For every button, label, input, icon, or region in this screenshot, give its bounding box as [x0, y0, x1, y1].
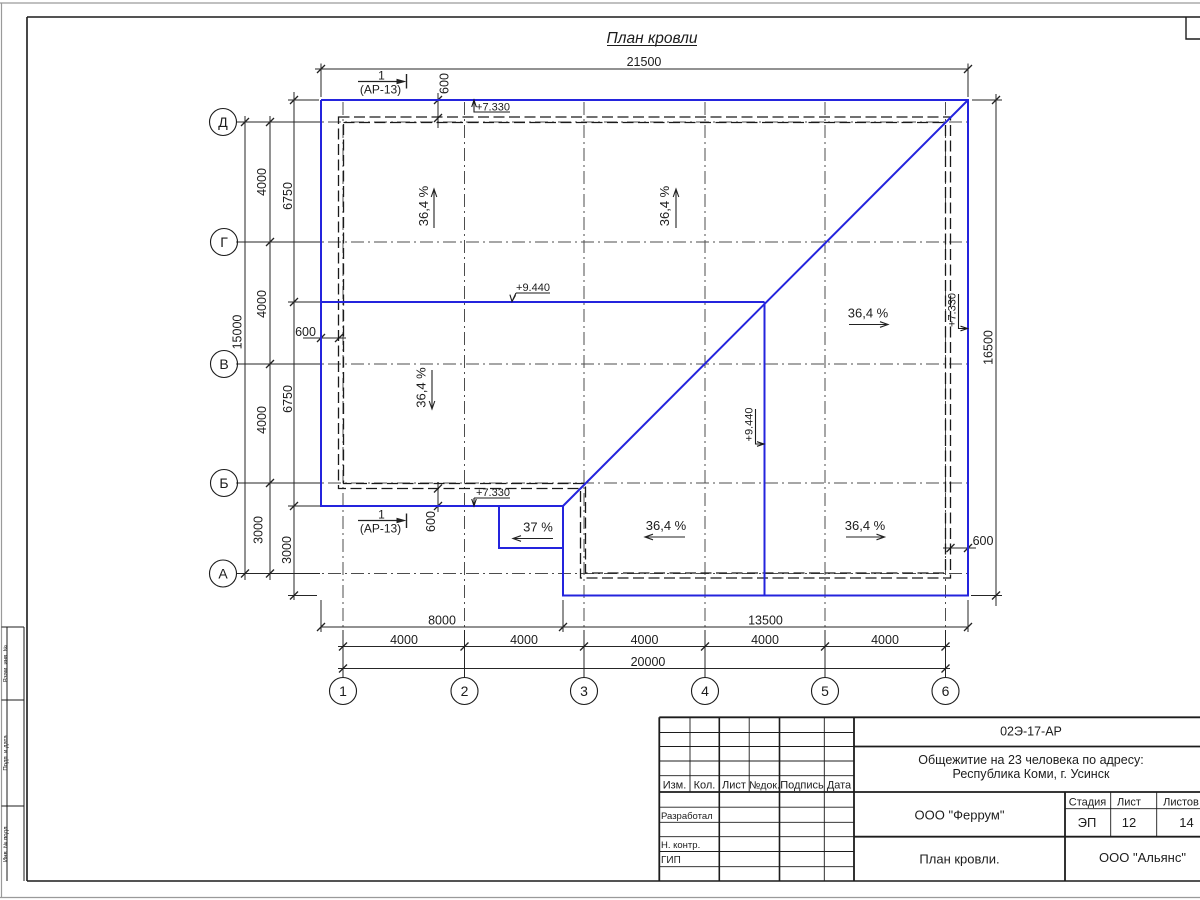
svg-text:37 %: 37 %: [523, 520, 553, 535]
svg-text:36,4 %: 36,4 %: [416, 185, 431, 226]
svg-text:Взам. инв. №: Взам. инв. №: [3, 645, 10, 682]
svg-text:4: 4: [701, 683, 709, 699]
svg-text:4000: 4000: [631, 633, 659, 647]
svg-text:В: В: [219, 356, 228, 372]
svg-text:6750: 6750: [281, 182, 295, 210]
svg-text:36,4 %: 36,4 %: [414, 367, 429, 408]
svg-text:2: 2: [461, 683, 469, 699]
svg-text:600: 600: [295, 325, 316, 339]
svg-text:4000: 4000: [510, 633, 538, 647]
svg-text:4000: 4000: [255, 406, 269, 434]
svg-text:Общежитие на 23 человека по ад: Общежитие на 23 человека по адресу:: [918, 753, 1143, 767]
svg-text:21500: 21500: [627, 55, 662, 69]
svg-text:(АР-13): (АР-13): [360, 522, 401, 536]
svg-text:4000: 4000: [871, 633, 899, 647]
svg-text:ООО "Феррум": ООО "Феррум": [915, 808, 1005, 823]
svg-text:36,4 %: 36,4 %: [845, 518, 886, 533]
svg-text:А: А: [218, 566, 228, 582]
svg-text:4000: 4000: [255, 168, 269, 196]
svg-text:Г: Г: [220, 234, 228, 250]
svg-text:4000: 4000: [255, 290, 269, 318]
svg-text:6: 6: [942, 683, 950, 699]
svg-text:+7.330: +7.330: [947, 293, 959, 327]
svg-text:3: 3: [580, 683, 588, 699]
svg-text:600: 600: [424, 511, 438, 532]
svg-text:600: 600: [973, 534, 994, 548]
svg-text:12: 12: [1122, 815, 1136, 830]
svg-text:Б: Б: [219, 475, 228, 491]
svg-text:15000: 15000: [231, 315, 245, 350]
svg-text:Дата: Дата: [827, 780, 852, 792]
svg-text:6750: 6750: [281, 385, 295, 413]
svg-text:14: 14: [1179, 815, 1193, 830]
svg-text:3000: 3000: [280, 536, 294, 564]
svg-text:+9.440: +9.440: [744, 408, 756, 442]
svg-text:ЭП: ЭП: [1078, 815, 1097, 830]
svg-text:Республика Коми, г. Усинск: Республика Коми, г. Усинск: [953, 767, 1110, 781]
svg-text:1: 1: [378, 69, 385, 83]
svg-text:(АР-13): (АР-13): [360, 83, 401, 97]
svg-text:Н. контр.: Н. контр.: [661, 840, 700, 851]
svg-text:20000: 20000: [631, 655, 666, 669]
svg-text:План кровли.: План кровли.: [919, 852, 999, 867]
svg-text:ООО "Альянс": ООО "Альянс": [1099, 850, 1186, 865]
svg-text:Стадия: Стадия: [1069, 797, 1107, 809]
svg-text:Лист: Лист: [722, 780, 746, 792]
svg-text:Листов: Листов: [1163, 797, 1199, 809]
svg-text:Лист: Лист: [1117, 797, 1141, 809]
svg-text:Изм.: Изм.: [663, 780, 687, 792]
svg-text:Подп. и дата: Подп. и дата: [4, 735, 10, 771]
svg-text:+7.330: +7.330: [476, 487, 510, 499]
svg-text:3000: 3000: [252, 516, 266, 544]
svg-text:Разработал: Разработал: [661, 811, 713, 822]
svg-text:1: 1: [378, 508, 385, 522]
svg-text:13500: 13500: [748, 614, 783, 628]
svg-text:План кровли: План кровли: [607, 30, 698, 47]
svg-text:+7.330: +7.330: [476, 102, 510, 114]
svg-text:16500: 16500: [982, 330, 996, 365]
svg-text:№док.: №док.: [749, 780, 780, 792]
svg-text:4000: 4000: [751, 633, 779, 647]
svg-text:+9.440: +9.440: [516, 282, 550, 294]
svg-text:36,4 %: 36,4 %: [848, 306, 889, 321]
svg-text:36,4 %: 36,4 %: [657, 185, 672, 226]
svg-text:02Э-17-АР: 02Э-17-АР: [1000, 725, 1062, 739]
svg-text:1: 1: [339, 683, 347, 699]
svg-text:Инв. № подл.: Инв. № подл.: [3, 824, 10, 862]
svg-text:8000: 8000: [428, 614, 456, 628]
svg-text:Подпись: Подпись: [780, 780, 824, 792]
svg-text:600: 600: [438, 73, 452, 94]
svg-text:ГИП: ГИП: [661, 855, 681, 866]
svg-text:Д: Д: [218, 114, 228, 130]
svg-text:36,4 %: 36,4 %: [646, 518, 687, 533]
svg-text:5: 5: [821, 683, 829, 699]
svg-text:Кол.: Кол.: [694, 780, 716, 792]
svg-text:4000: 4000: [390, 633, 418, 647]
